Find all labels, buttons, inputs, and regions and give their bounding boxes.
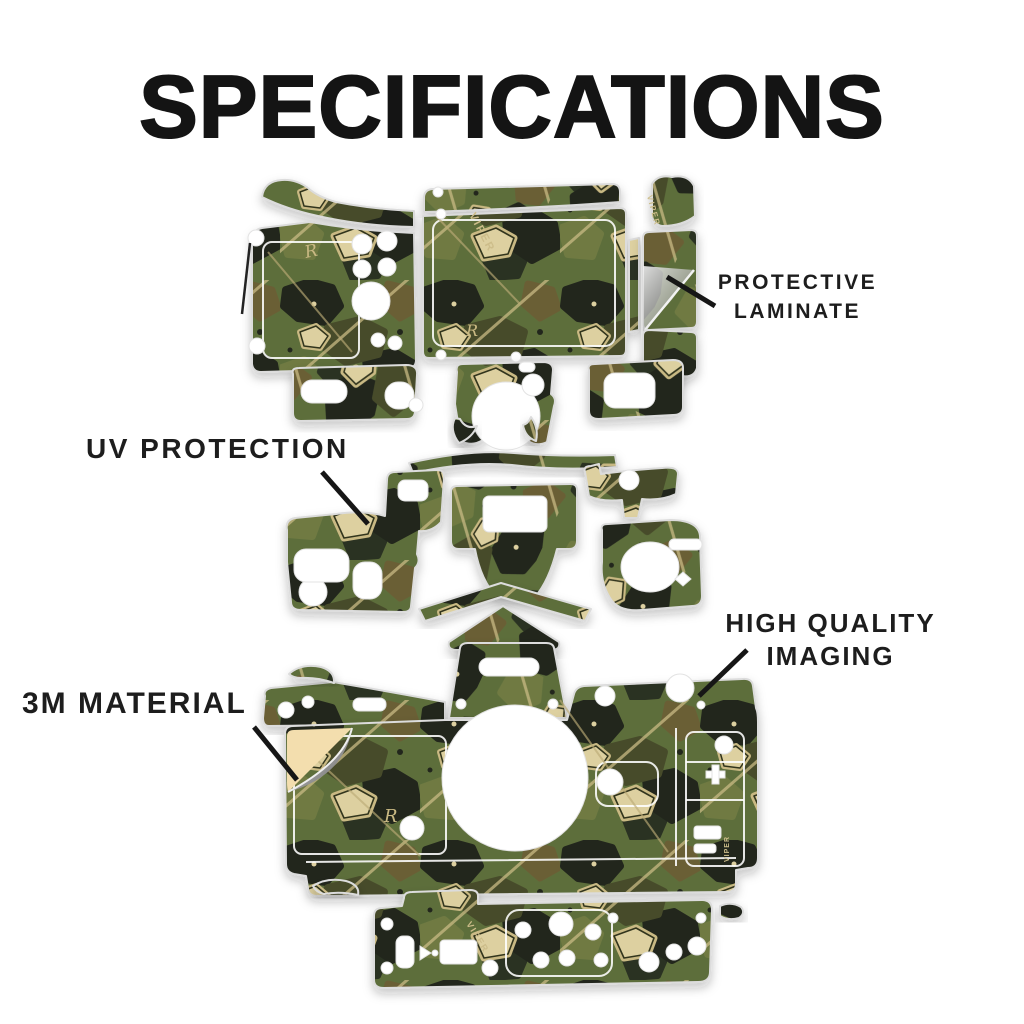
monogram-mark: R xyxy=(383,806,398,827)
antenna-rod-piece xyxy=(242,243,250,314)
screen-top-strip-piece xyxy=(424,184,620,212)
lens-mount-hole xyxy=(442,705,588,851)
bottom-bit-piece xyxy=(720,904,743,919)
camera-skin-diagram: R VIPER R VIPER xyxy=(0,0,1024,1024)
callout-3m-material: 3M MATERIAL xyxy=(22,687,247,721)
crescent-piece-bottom xyxy=(313,880,358,895)
callout-hqi-line1: HIGH QUALITY xyxy=(708,607,953,640)
callout-hqi-line2: IMAGING xyxy=(708,640,953,673)
monogram-mark: R xyxy=(465,321,478,340)
battery-door-hole xyxy=(396,936,414,968)
callout-protective-line2: LAMINATE xyxy=(695,297,900,326)
callout-protective-laminate: PROTECTIVE LAMINATE xyxy=(695,268,900,326)
bottom-plate-piece xyxy=(374,890,712,988)
laminate-side-strip-piece xyxy=(629,238,639,332)
callout-protective-line1: PROTECTIVE xyxy=(695,268,900,297)
back-top-strip-piece xyxy=(262,180,414,227)
spec-sheet: SPECIFICATIONS xyxy=(0,0,1024,1024)
callout-high-quality-imaging: HIGH QUALITY IMAGING xyxy=(708,607,953,673)
callout-uv-protection: UV PROTECTION xyxy=(86,433,349,465)
crescent-piece-top xyxy=(289,666,334,683)
screen-skin-piece xyxy=(423,208,626,358)
tripod-mount-hole xyxy=(639,952,659,972)
brand-mark: VIPER xyxy=(724,836,731,862)
